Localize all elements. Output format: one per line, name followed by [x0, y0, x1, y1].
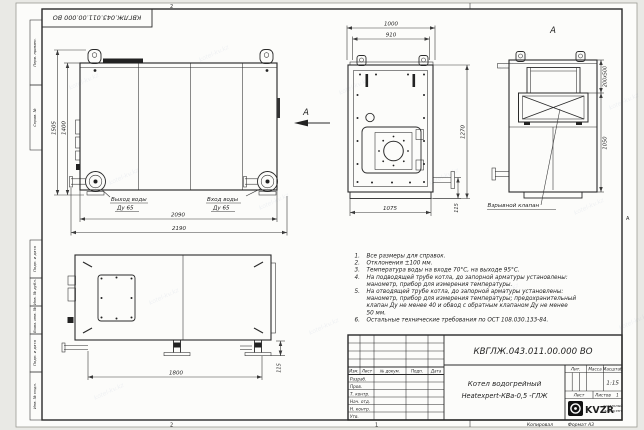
note-line: манометр, прибор для измерения температу… — [367, 296, 577, 302]
zone-number-bottom-left: 2 — [170, 423, 173, 429]
svg-text:№ докум.: № докум. — [379, 368, 400, 373]
dim-text: 200х500 — [603, 66, 609, 87]
svg-text:Масса: Масса — [588, 367, 602, 372]
engineering-drawing: kotel-kv.kz kotel-kv.kz kotel-kv.kz kote… — [0, 0, 644, 430]
margin-label: Инв. № подл. — [32, 383, 37, 409]
svg-text:Разраб.: Разраб. — [350, 376, 366, 381]
margin-label: Подп. и дата — [32, 245, 37, 272]
dim-text: 1000 — [384, 22, 398, 28]
svg-text:Изм.: Изм. — [349, 368, 358, 373]
svg-text:6.: 6. — [355, 317, 361, 323]
note-line: Отклонения ±100 мм. — [367, 261, 433, 267]
svg-text:4.: 4. — [355, 275, 361, 281]
sheets-label: Листов — [594, 393, 611, 398]
scale-value: 1:15 — [606, 381, 619, 387]
svg-text:Дата: Дата — [430, 368, 442, 373]
inlet-dn: Ду 65 — [212, 206, 230, 212]
note-line: клапан Ду не менее 40 и обвод с обратным… — [367, 303, 569, 309]
margin-label: Взам. инв. № — [32, 307, 37, 333]
product-name-line2: Heatexpert-КВа-0,5 -ГЛЖ — [462, 392, 549, 400]
view-arrow-label: А — [302, 108, 309, 118]
product-name-line1: Котел водогрейный — [468, 380, 542, 388]
note-line: 50 мм. — [367, 310, 387, 316]
svg-text:Подп.: Подп. — [411, 368, 423, 373]
dim-text: 2190 — [172, 226, 186, 232]
svg-text:Н. контр.: Н. контр. — [350, 406, 370, 411]
note-line: На подводящей трубе котла, до запорной а… — [367, 275, 568, 281]
svg-text:Т. контр.: Т. контр. — [350, 391, 369, 396]
format-label: Формат А3 — [568, 422, 594, 428]
svg-text:5.: 5. — [355, 289, 361, 295]
dim-text: 910 — [386, 33, 397, 39]
dim-text: 1400 — [62, 121, 68, 135]
doc-number: КВГЛЖ.043.011.00.000 ВО — [474, 347, 593, 357]
svg-text:Масштаб: Масштаб — [603, 367, 623, 372]
dim-text: 1050 — [603, 136, 609, 150]
margin-label: Справ. № — [32, 108, 37, 127]
note-line: Остальные технические требования по ОСТ … — [367, 317, 549, 323]
view-title: А — [549, 26, 556, 36]
top-rail — [103, 59, 143, 64]
company-name-line2: ЗАВОД РЭП — [604, 409, 621, 413]
svg-text:1.: 1. — [355, 254, 361, 260]
svg-text:Лист: Лист — [361, 368, 373, 373]
dim-text: 115 — [277, 363, 283, 373]
attribute-headers: Лит. Масса Масштаб — [570, 367, 623, 372]
drawing-sheet-viewer: kotel-kv.kz kotel-kv.kz kotel-kv.kz kote… — [0, 0, 644, 430]
dim-text: 1505 — [52, 121, 58, 135]
note-line: Температура воды на входе 70°С, на выход… — [367, 268, 520, 274]
svg-text:Лит.: Лит. — [570, 367, 581, 372]
zone-number-top: 2 — [170, 4, 173, 10]
zone-number-bottom-right: 1 — [375, 423, 378, 429]
dim-text: 115 — [454, 203, 460, 213]
note-line: На отводящей трубе котла, до запорной ар… — [367, 289, 564, 295]
company-name-line1: КОТЕЛЬНЫЙ — [604, 403, 623, 408]
sheets-value: 1 — [616, 393, 619, 398]
svg-text:Нач. отд.: Нач. отд. — [350, 399, 370, 404]
svg-text:Пров.: Пров. — [350, 384, 362, 389]
margin-label: Подп. и дата — [32, 339, 37, 366]
dim-text: 1075 — [383, 206, 397, 212]
svg-text:Утв.: Утв. — [350, 414, 359, 419]
valve-label: Взрывной клапан — [488, 203, 540, 209]
dim-text: 2090 — [171, 213, 185, 219]
sheet-label: Лист — [573, 393, 585, 398]
zone-letter-right: А — [626, 216, 630, 222]
note-line: манометр, прибор для измерения температу… — [367, 282, 513, 288]
dim-text: 1270 — [461, 125, 467, 139]
copied-label: Копировал — [527, 422, 553, 428]
svg-text:2.: 2. — [355, 261, 361, 267]
doc-number-rotated: КВГЛЖ.043.011.00.000 ВО — [53, 13, 141, 21]
margin-label: Перв. примен. — [32, 38, 37, 67]
paper-sheet — [16, 3, 637, 427]
inlet-label: Вход воды — [207, 197, 239, 203]
note-line: Все размеры для справок. — [367, 254, 446, 260]
outlet-label: Выход воды — [111, 197, 147, 203]
svg-text:3.: 3. — [355, 268, 361, 274]
outlet-dn: Ду 65 — [116, 206, 134, 212]
dim-text: 1800 — [169, 371, 183, 377]
margin-label: Инв. № дубл. — [32, 279, 37, 305]
